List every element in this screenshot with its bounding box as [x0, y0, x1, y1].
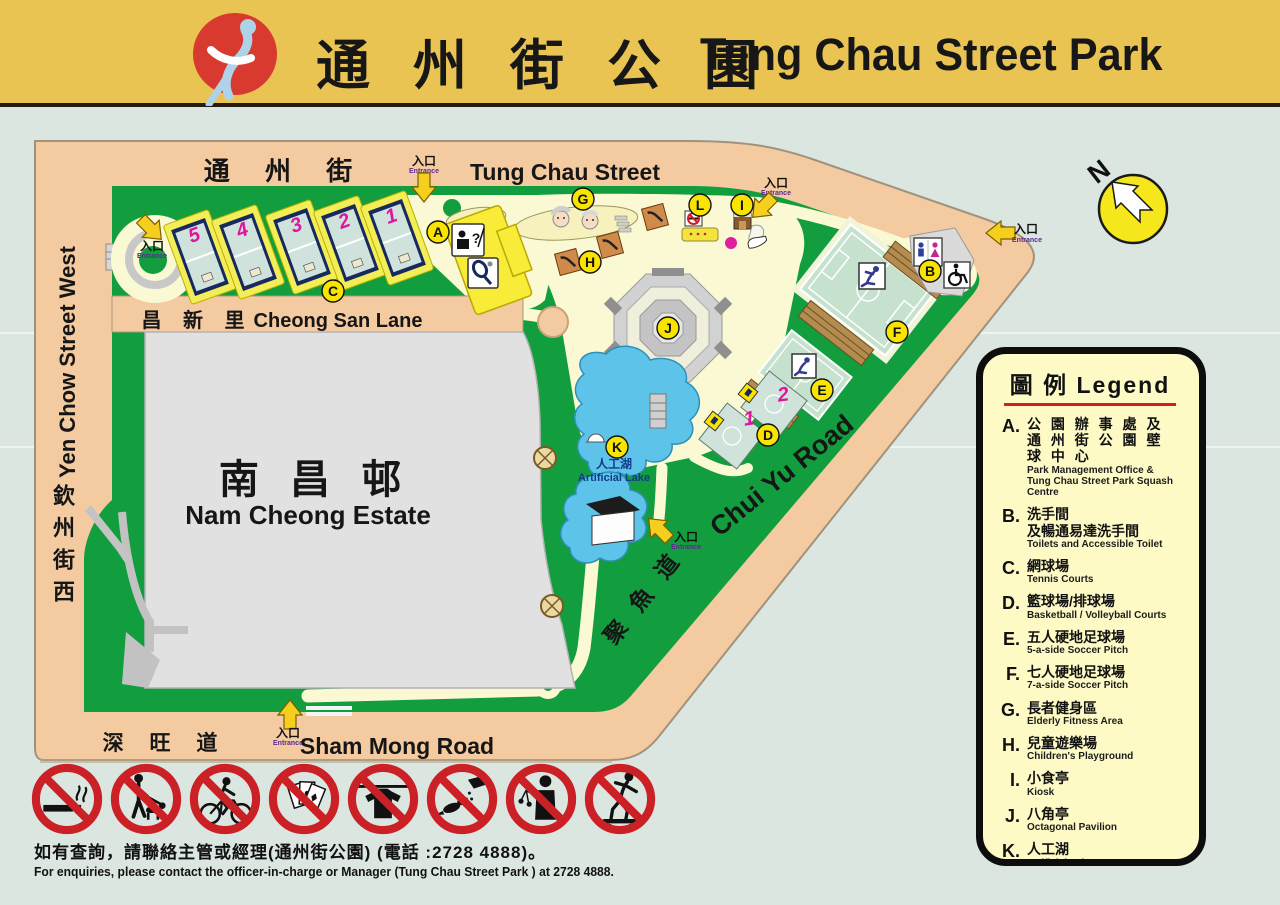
- svg-text:K: K: [612, 439, 622, 455]
- no-cycling-icon: [188, 762, 262, 836]
- footpath: [658, 468, 662, 528]
- marker-K: K: [606, 436, 628, 458]
- map-dot: [725, 237, 737, 249]
- marker-L: L: [689, 194, 711, 216]
- legend-en: Elderly Fitness Area: [1027, 716, 1123, 727]
- legend-key: F.: [993, 664, 1020, 691]
- marker-E: E: [811, 379, 833, 401]
- legend-zh: 及暢通易達洗手間: [1027, 523, 1162, 539]
- legend-en: Children's Playground: [1027, 751, 1133, 762]
- sham-mong-road-zh: 深 旺 道: [103, 731, 228, 755]
- svg-text:E: E: [817, 382, 826, 398]
- no-gambling-icon: [267, 762, 341, 836]
- svg-text:C: C: [328, 283, 338, 299]
- svg-text:J: J: [664, 320, 672, 336]
- cheong-san-lane-en: Cheong San Lane: [254, 310, 423, 332]
- no-skateboarding-icon: [583, 762, 657, 836]
- squash-racquet-icon: [468, 258, 498, 288]
- legend-item-octagonal-pavilion: J. 八角亭 Octagonal Pavilion: [993, 806, 1187, 833]
- svg-text:G: G: [578, 191, 589, 207]
- no-bird-feeding-icon: [425, 762, 499, 836]
- lake-label-en: Artificial Lake: [578, 472, 650, 484]
- marker-F: F: [886, 321, 908, 343]
- roundabout: [538, 307, 568, 337]
- legend-key: I.: [993, 770, 1020, 797]
- legend-key: A.: [993, 416, 1020, 498]
- tung-chau-street-zh: 通 州 街: [204, 156, 366, 186]
- legend-title: 圖 例 Legend: [1004, 366, 1177, 406]
- legend-key: D.: [993, 593, 1020, 620]
- legend-en: Basketball / Volleyball Courts: [1027, 610, 1166, 621]
- legend-en: Park Management Office &: [1027, 465, 1187, 476]
- legend-en: 5-a-side Soccer Pitch: [1027, 645, 1128, 656]
- legend-zh: 兒童遊樂場: [1027, 735, 1133, 751]
- legend-en: Kiosk: [1027, 787, 1069, 798]
- enquiry-notice: 如有查詢，請聯絡主管或經理(通州街公園) (電話 :2728 4888)。 Fo…: [34, 838, 632, 879]
- legend-item-tennis-courts: C. 網球場 Tennis Courts: [993, 558, 1187, 585]
- yen-chow-street-west-en: Yen Chow Street West: [55, 245, 80, 478]
- svg-text:Entrance: Entrance: [137, 253, 167, 260]
- legend-item-basketball-volleyball: D. 籃球場/排球場 Basketball / Volleyball Court…: [993, 593, 1187, 620]
- header-banner: 通 州 街 公 園 Tung Chau Street Park: [0, 0, 1280, 107]
- svg-text:A: A: [433, 224, 443, 240]
- legend-en: Tennis Courts: [1027, 574, 1093, 585]
- svg-text:入口: 入口: [140, 239, 164, 253]
- legend-panel: 圖 例 Legend A. 公 園 辦 事 處 及 通 州 街 公 園 壁 球 …: [976, 347, 1206, 866]
- svg-text:H: H: [585, 254, 595, 270]
- legend-key: K.: [993, 841, 1020, 866]
- legend-key: C.: [993, 558, 1020, 585]
- crossing-bar: [306, 706, 352, 710]
- tung-chau-street-en: Tung Chau Street: [470, 159, 660, 185]
- svg-text:入口: 入口: [276, 726, 300, 740]
- svg-text:Entrance: Entrance: [671, 544, 701, 551]
- park-title-english: Tung Chau Street Park: [700, 29, 1162, 81]
- svg-text:F: F: [893, 324, 902, 340]
- marker-B: B: [919, 260, 941, 282]
- sham-mong-road-en: Sham Mong Road: [300, 733, 494, 759]
- legend-key: E.: [993, 629, 1020, 656]
- marker-C: C: [322, 280, 344, 302]
- estate-label-zh: 南 昌 邨: [219, 458, 411, 502]
- svg-text:B: B: [925, 263, 935, 279]
- marker-J: J: [657, 317, 679, 339]
- marker-H: H: [579, 251, 601, 273]
- legend-zh: 人工湖: [1027, 841, 1093, 857]
- no-smoking-icon: [30, 762, 104, 836]
- legend-item-toilets: B. 洗手間 及暢通易達洗手間 Toilets and Accessible T…: [993, 506, 1187, 550]
- prohibition-signs: [30, 762, 657, 836]
- svg-text:入口: 入口: [674, 530, 698, 544]
- soccer-player-icon: [859, 263, 885, 289]
- cheong-san-lane-zh: 昌 新 里: [141, 308, 252, 332]
- enquiry-text-en: For enquiries, please contact the office…: [34, 865, 614, 879]
- svg-text:L: L: [696, 197, 705, 213]
- marker-A: A: [427, 221, 449, 243]
- legend-zh: 長者健身區: [1027, 700, 1123, 716]
- marker-G: G: [572, 188, 594, 210]
- enquiry-text-zh: 如有查詢，請聯絡主管或經理(通州街公園) (電話 :2728 4888)。: [34, 838, 632, 863]
- legend-item-management-office: A. 公 園 辦 事 處 及 通 州 街 公 園 壁 球 中 心 Park Ma…: [993, 416, 1187, 498]
- no-clothes-drying-icon: [346, 762, 420, 836]
- marker-I: I: [731, 194, 753, 216]
- legend-zh: 五人硬地足球場: [1027, 629, 1128, 645]
- legend-key: B.: [993, 506, 1020, 550]
- legend-zh: 通 州 街 公 園 壁 球 中 心: [1027, 432, 1187, 464]
- legend-zh: 小食亭: [1027, 770, 1069, 786]
- legend-zh: 七人硬地足球場: [1027, 664, 1128, 680]
- legend-item-artificial-lake: K. 人工湖 Artificial Lake: [993, 841, 1187, 866]
- no-hawking-icon: [504, 762, 578, 836]
- crossing-bar: [306, 712, 352, 716]
- yen-chow-street-west-zh: 欽州街西: [50, 484, 78, 612]
- svg-text:Entrance: Entrance: [1012, 237, 1042, 244]
- svg-text:入口: 入口: [412, 154, 436, 168]
- legend-zh: 洗手間: [1027, 506, 1162, 522]
- soccer-player-icon: [792, 354, 816, 378]
- gazebo-icon: [534, 447, 556, 469]
- legend-en: Artificial Lake: [1027, 858, 1093, 866]
- svg-text:入口: 入口: [764, 176, 788, 190]
- legend-key: H.: [993, 735, 1020, 762]
- legend-item-childrens-playground: H. 兒童遊樂場 Children's Playground: [993, 735, 1187, 762]
- north-arrow-icon: N: [1082, 154, 1167, 243]
- legend-item-5-a-side-pitch: E. 五人硬地足球場 5-a-side Soccer Pitch: [993, 629, 1187, 656]
- legend-en: Octagonal Pavilion: [1027, 822, 1117, 833]
- estate-label-en: Nam Cheong Estate: [185, 500, 431, 530]
- legend-zh: 籃球場/排球場: [1027, 593, 1166, 609]
- svg-text:入口: 入口: [1014, 222, 1038, 236]
- legend-item-kiosk: I. 小食亭 Kiosk: [993, 770, 1187, 797]
- marker-D: D: [757, 424, 779, 446]
- legend-en: 7-a-side Soccer Pitch: [1027, 680, 1128, 691]
- gazebo-icon: [541, 595, 563, 617]
- no-dog-walking-icon: [109, 762, 183, 836]
- svg-text:D: D: [763, 427, 773, 443]
- legend-item-7-a-side-pitch: F. 七人硬地足球場 7-a-side Soccer Pitch: [993, 664, 1187, 691]
- legend-item-elderly-fitness: G. 長者健身區 Elderly Fitness Area: [993, 700, 1187, 727]
- svg-text:I: I: [740, 197, 744, 213]
- information-icon: ?: [452, 224, 484, 256]
- legend-zh: 網球場: [1027, 558, 1093, 574]
- legend-en: Tung Chau Street Park Squash Centre: [1027, 476, 1187, 498]
- legend-zh: 八角亭: [1027, 806, 1117, 822]
- svg-text:Entrance: Entrance: [273, 740, 303, 747]
- wheelchair-icon: [944, 262, 970, 288]
- legend-key: J.: [993, 806, 1020, 833]
- legend-key: G.: [993, 700, 1020, 727]
- legend-en: Toilets and Accessible Toilet: [1027, 539, 1162, 550]
- lcsd-logo-icon: [185, 10, 285, 106]
- legend-zh: 公 園 辦 事 處 及: [1027, 416, 1187, 432]
